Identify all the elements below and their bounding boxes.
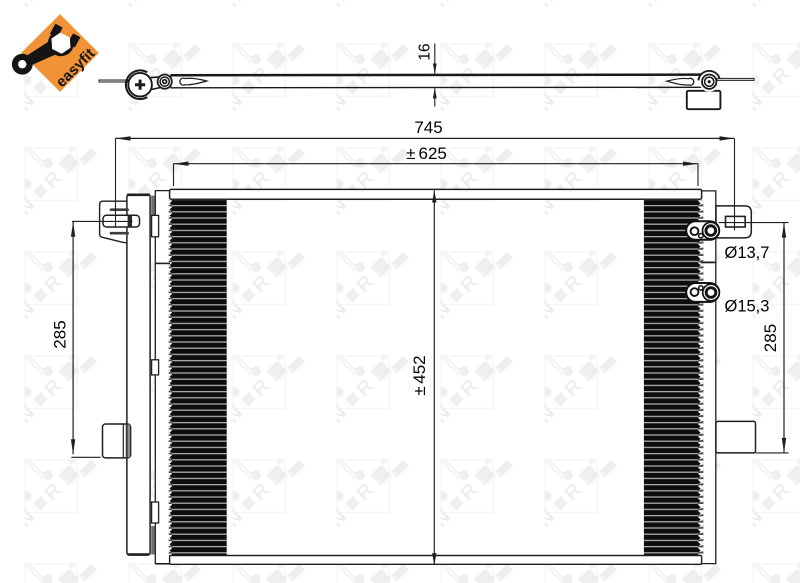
svg-text:16: 16 xyxy=(417,43,434,60)
svg-text:285: 285 xyxy=(761,324,780,352)
svg-text:745: 745 xyxy=(414,118,442,137)
svg-text:285: 285 xyxy=(51,320,70,348)
svg-text:±452: ±452 xyxy=(410,355,429,395)
svg-text:Ø13,7: Ø13,7 xyxy=(725,244,770,262)
svg-text:±625: ±625 xyxy=(406,144,447,163)
svg-text:Ø15,3: Ø15,3 xyxy=(725,298,770,316)
